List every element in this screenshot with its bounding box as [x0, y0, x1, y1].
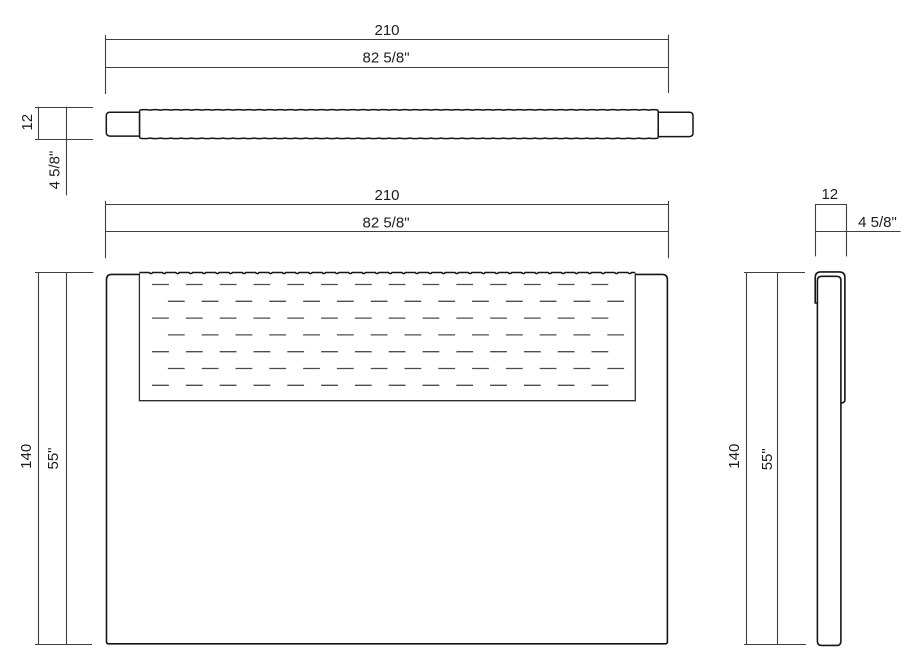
svg-text:82 5/8": 82 5/8": [362, 50, 409, 67]
svg-text:140: 140: [726, 444, 743, 469]
svg-text:210: 210: [374, 22, 399, 39]
svg-text:12: 12: [19, 114, 36, 131]
svg-text:140: 140: [18, 444, 35, 469]
svg-text:55": 55": [45, 447, 62, 469]
svg-text:82 5/8": 82 5/8": [362, 214, 409, 231]
svg-text:4 5/8": 4 5/8": [858, 214, 897, 231]
svg-text:55": 55": [759, 448, 776, 470]
svg-text:12: 12: [821, 186, 838, 203]
svg-text:210: 210: [374, 187, 399, 204]
svg-text:4 5/8": 4 5/8": [47, 151, 64, 190]
